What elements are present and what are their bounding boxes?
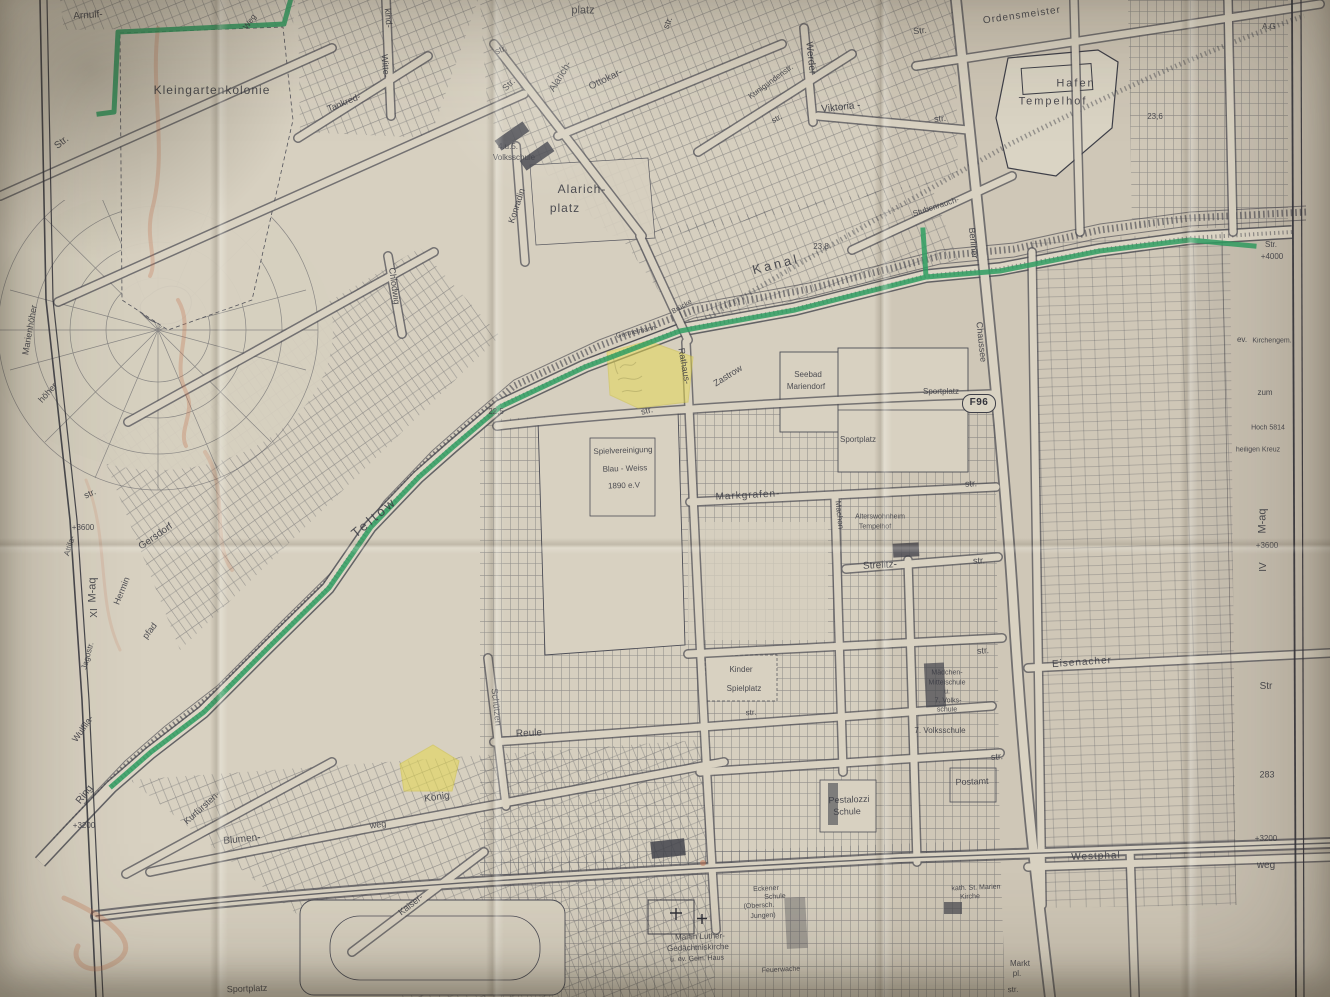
historical-map-photo: F96 Arnulf-Str.KleingartenkolonieWegkind… [0,0,1330,997]
route-badge-f96: F96 [962,394,996,413]
map-label-schule: Schule [833,807,861,817]
map-label-spielplatz: Spielplatz [727,685,762,693]
map-label-m-aq: M-aq [88,577,99,602]
map-label-kind: kind- [383,8,394,28]
map-label-mariendorf: Mariendorf [787,383,825,391]
map-label-1890-e-v: 1890 e.V [608,481,640,490]
map-label-str: str. [965,479,977,489]
map-label-3200: +3200 [73,822,95,830]
map-label-str: Str. [913,26,927,36]
map-label-7-volksschule: 7. Volksschule [914,727,965,735]
map-label-sportplatz: Sportplatz [923,388,959,396]
map-label-str: Str. [1265,241,1277,249]
map-label-7-volks: 7. Volks- [935,698,962,705]
map-label-platz: platz [550,202,580,214]
map-label-3600: +3600 [1256,542,1278,550]
map-label-23-6: 23,6 [1147,113,1163,121]
map-label-hoch-5814: Hoch 5814 [1251,425,1285,432]
map-label-strelitz: Strelitz- [863,560,897,572]
map-label-werder: Werder [803,41,816,74]
map-label-markt: Markt [1010,960,1030,968]
map-label-ev: ev. [1237,336,1247,344]
map-label-tempelhof: Tempelhof [859,524,891,531]
map-label-4-u-5: 4.u.5. [498,143,518,151]
map-label-str: str. [973,556,985,566]
map-label-sportplatz: Sportplatz [840,436,876,444]
map-label-3200: +3200 [1255,835,1277,843]
map-label-eckener: Eckener [753,885,779,893]
map-label-str: str. [745,709,756,718]
map-label-u: u. [944,689,950,696]
map-label-heiligen-kreuz: heiligen Kreuz [1236,447,1280,454]
map-label-berliner: Berliner [967,227,979,259]
map-label-m-aq: M-aq [1258,508,1269,533]
map-label-mädchen: Mädchen- [931,670,962,677]
map-label-westphal: Westphal [1071,851,1121,863]
map-label-xi: XI [90,608,100,617]
map-label-alterswohnheim: Alterswohnheim [855,514,905,521]
map-label-arnulf: Arnulf- [73,10,103,22]
map-label-22-5: 22,5 [488,408,504,416]
map-label-kirche: Kirche [960,893,980,901]
map-label-str: Str [1260,682,1273,692]
map-label-str: str. [977,646,990,656]
map-label-kinder: Kinder [729,666,752,674]
map-label-sportplatz: Sportplatz [227,984,268,994]
map-label-pestalozzi: Pestalozzi [828,795,869,805]
map-label-schule: schule [937,707,957,714]
map-label-3600: +3600 [72,524,94,532]
map-label-witte: Witte- [379,54,390,78]
map-label-kleingartenkolonie: Kleingartenkolonie [154,84,271,96]
map-label-hafen: Hafen [1056,79,1095,90]
map-label-str: str. [1007,986,1018,995]
map-label-alarich: Alarich- [558,183,607,195]
map-canvas [0,0,1330,997]
map-label-schule: Schule [764,893,786,901]
map-label-machon: Machon [834,500,845,529]
map-label-tempelhof: Tempelhof [1019,97,1088,108]
map-label-str: str. [991,752,1004,762]
map-label-postamt: Postamt [955,777,988,787]
map-label-iv: IV [1259,562,1269,571]
map-label-str: str. [934,114,947,124]
map-label-a-g: A.G [1262,23,1276,31]
map-label-platz: platz [571,6,594,17]
map-label-jungen: Jungen) [750,912,776,920]
map-label-seebad: Seebad [794,371,822,379]
map-label-reule: Reule [516,728,543,739]
map-label-pl: pl. [1013,970,1021,978]
map-label-283: 283 [1259,771,1274,780]
map-label-4000: +4000 [1261,253,1283,261]
map-label-volksschule: Volksschule [493,154,535,162]
map-label-mittelschule: Mittelschule [929,680,966,687]
map-label-zum: zum [1257,389,1272,397]
map-label-blau-weiss: Blau - Weiss [602,464,647,474]
map-label-kirchengem: Kirchengem. [1252,338,1291,345]
map-label-weg: weg [1257,861,1275,871]
map-label-23-8: 23,8 [813,243,829,251]
